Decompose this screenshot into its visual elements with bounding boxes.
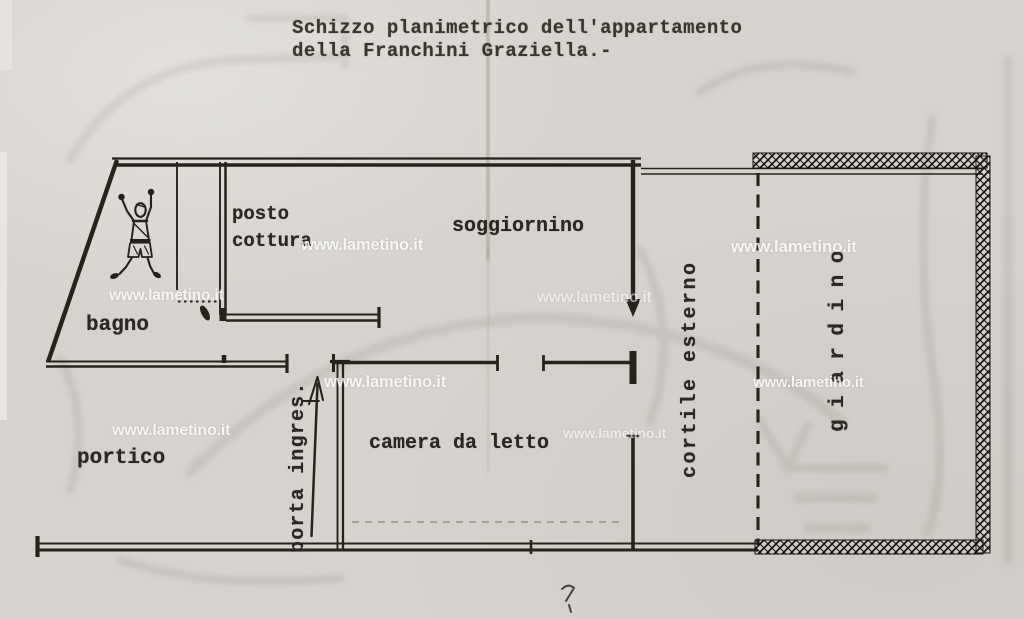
watermark: www.lametino.it xyxy=(112,422,230,440)
room-label-porta-ingresso: porta ingres. xyxy=(287,381,311,553)
watermark: www.lametino.it xyxy=(537,289,651,307)
wall-camera-right xyxy=(627,436,641,549)
watermark: www.lametino.it xyxy=(753,374,864,391)
handwritten-mark xyxy=(562,586,574,612)
wall-top xyxy=(112,159,641,166)
room-label-bagno: bagno xyxy=(86,314,149,337)
page-title-line2: della Franchini Graziella.- xyxy=(292,40,612,62)
paper-edge-patches xyxy=(0,0,12,420)
fence-bottom-hatched xyxy=(755,540,983,554)
bagno-door-leaf xyxy=(198,304,212,322)
wall-posto-cottura-bottom xyxy=(226,307,379,328)
watermark: www.lametino.it xyxy=(109,287,223,305)
fence-top-hatched xyxy=(753,153,987,168)
wall-interior-middle-b xyxy=(543,351,633,384)
room-label-cortile-esterno: cortile esterno xyxy=(679,260,703,478)
wall-bagno-bottom xyxy=(46,354,287,373)
wall-bottom xyxy=(38,536,759,557)
room-label-posto-cottura-line2: cottura xyxy=(232,230,312,252)
scanned-floorplan-page: Schizzo planimetrico dell'appartamento d… xyxy=(0,0,1024,619)
room-label-posto-cottura-line1: posto xyxy=(232,203,289,225)
watermark: www.lametino.it xyxy=(731,237,857,257)
watermark: www.lametino.it xyxy=(324,373,446,392)
watermark: www.lametino.it xyxy=(563,425,666,441)
room-label-camera-da-letto: camera da letto xyxy=(369,432,549,455)
body-figure-icon xyxy=(109,190,162,280)
page-title-line1: Schizzo planimetrico dell'appartamento xyxy=(292,17,742,39)
room-label-soggiornino: soggiornino xyxy=(452,215,584,238)
room-label-portico: portico xyxy=(77,447,165,470)
wall-cortile-top xyxy=(641,169,983,175)
room-label-giardino: giardino xyxy=(827,239,851,432)
fence-right-hatched xyxy=(976,156,990,553)
watermark: www.lametino.it xyxy=(301,236,423,255)
floorplan-drawing xyxy=(0,0,1024,619)
